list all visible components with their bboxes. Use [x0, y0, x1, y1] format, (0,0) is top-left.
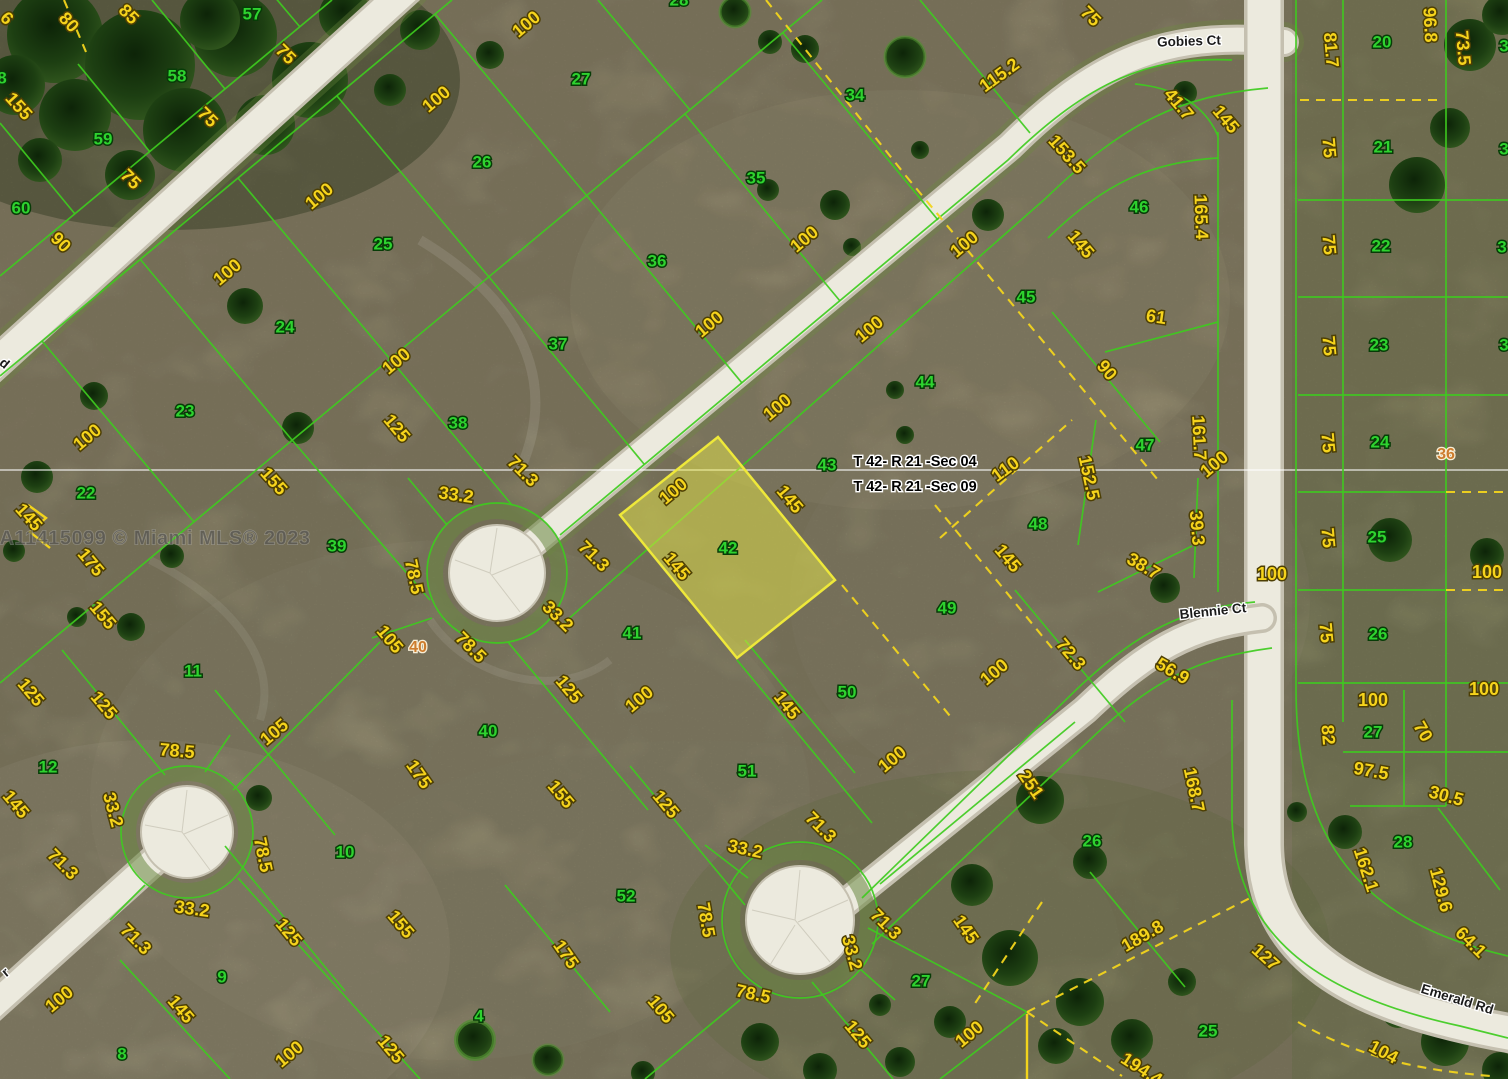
mls-watermark: A11415099 © Miami MLS® 2023 [0, 527, 310, 549]
section-township-label: T 42- R 21 -Sec 04 [853, 454, 976, 470]
street-label-gobies-ct: Gobies Ct [1157, 32, 1222, 49]
dimension-label: 82 [1317, 724, 1339, 746]
dimension-label: 75 [1317, 432, 1339, 454]
lot-number-label-44: 44 [916, 372, 935, 391]
dimension-label: 75 [1315, 622, 1337, 644]
dimension-label: 78.5 [159, 739, 196, 762]
dimension-label: 61 [1145, 305, 1168, 328]
dimension-label: 100 [1472, 562, 1502, 582]
dimension-label: 73.5 [1452, 30, 1475, 67]
lot-number-label-28: 28 [1394, 832, 1413, 851]
lot-number-label-8: 8 [117, 1044, 126, 1063]
lot-number-label-49: 49 [938, 598, 957, 617]
lot-number-label-37: 37 [549, 334, 568, 353]
lot-number-label-27: 27 [572, 69, 591, 88]
aerial-plat-map-photo[interactable]: 5758596082625242322272834353637383911121… [0, 0, 1508, 1079]
lot-number-label-26: 26 [1369, 624, 1388, 643]
lot-number-label-40: 40 [479, 721, 498, 740]
dimension-label: 96.8 [1419, 7, 1441, 43]
lot-number-label-28: 28 [670, 0, 689, 9]
lot-number-label-25: 25 [374, 234, 393, 253]
lot-number-label-34: 34 [846, 85, 865, 104]
cul-de-sac-lower-left [129, 774, 245, 890]
dimension-label: 75 [1318, 137, 1340, 159]
block-number-label: 36 [1437, 446, 1455, 463]
lot-number-label-22: 22 [77, 483, 96, 502]
lot-number-label-24: 24 [276, 317, 295, 336]
lot-number-label-57: 57 [243, 4, 262, 23]
lot-number-label-8: 8 [0, 68, 7, 87]
lot-number-label-11: 11 [184, 661, 202, 680]
lot-number-label-3: 3 [1499, 36, 1508, 55]
dimension-label: 100 [1469, 679, 1499, 699]
lot-number-label-47: 47 [1136, 435, 1155, 454]
lot-number-label-48: 48 [1029, 514, 1048, 533]
cul-de-sac-gobies [435, 511, 559, 635]
lot-number-label-4: 4 [474, 1006, 484, 1025]
lot-number-label-25: 25 [1199, 1021, 1218, 1040]
dimension-label: 100 [1257, 564, 1287, 584]
lot-number-label-26: 26 [1083, 831, 1102, 850]
dimension-label: 81.7 [1320, 32, 1343, 69]
block-number-label: 40 [409, 639, 427, 656]
lot-number-label-10: 10 [336, 842, 355, 861]
lot-number-label-26: 26 [473, 152, 492, 171]
lot-number-label-3: 3 [1499, 335, 1508, 354]
lot-number-label-20: 20 [1373, 32, 1392, 51]
lot-number-label-24: 24 [1371, 432, 1390, 451]
lot-number-label-58: 58 [168, 66, 187, 85]
dimension-label: 165.4 [1190, 194, 1212, 240]
dimension-label: 161.7 [1188, 415, 1210, 461]
lot-number-label-21: 21 [1374, 137, 1393, 156]
lot-number-label-23: 23 [176, 401, 195, 420]
dimension-label: 39.3 [1186, 510, 1209, 547]
dimension-label: 75 [1317, 527, 1339, 549]
lot-number-label-50: 50 [838, 682, 857, 701]
lot-number-label-27: 27 [1364, 722, 1383, 741]
lot-number-label-46: 46 [1130, 197, 1149, 216]
dimension-label: 75 [1318, 335, 1340, 357]
lot-number-label-36: 36 [648, 251, 667, 270]
lot-number-label-3: 3 [1499, 139, 1508, 158]
lot-number-label-22: 22 [1372, 236, 1391, 255]
lot-number-label-27: 27 [912, 971, 931, 990]
lot-number-label-9: 9 [217, 967, 226, 986]
lot-number-label-12: 12 [39, 757, 58, 776]
lot-number-label-23: 23 [1370, 335, 1389, 354]
dimension-label: 75 [1318, 234, 1340, 256]
aerial-map-canvas: 5758596082625242322272834353637383911121… [0, 0, 1508, 1079]
lot-number-label-60: 60 [12, 198, 31, 217]
section-township-label: T 42- R 21 -Sec 09 [853, 479, 976, 495]
lot-number-label-38: 38 [449, 413, 468, 432]
lot-number-label-52: 52 [617, 886, 636, 905]
lot-number-label-25: 25 [1368, 527, 1387, 546]
lot-number-label-59: 59 [94, 129, 113, 148]
lot-number-label-42: 42 [719, 538, 738, 557]
lot-number-label-39: 39 [328, 536, 347, 555]
lot-number-label-43: 43 [818, 455, 837, 474]
lot-number-label-3: 3 [1497, 237, 1506, 256]
lot-number-label-45: 45 [1017, 287, 1036, 306]
dimension-label: 100 [1358, 690, 1388, 710]
lot-number-label-51: 51 [738, 761, 757, 780]
lot-number-label-35: 35 [747, 168, 766, 187]
lot-number-label-41: 41 [623, 623, 642, 642]
